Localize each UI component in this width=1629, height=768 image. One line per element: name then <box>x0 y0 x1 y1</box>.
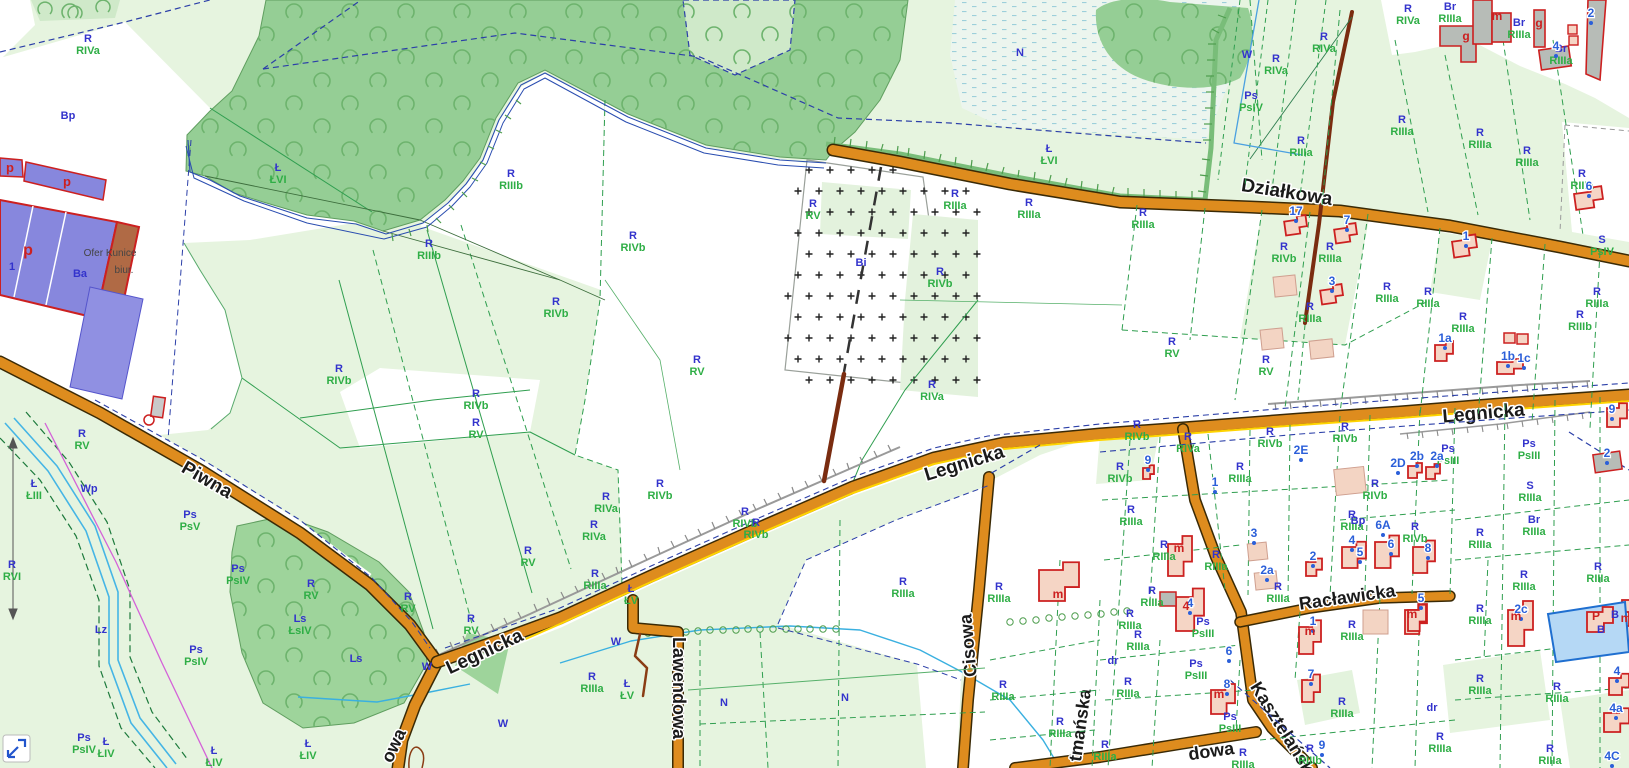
svg-text:RIIIa: RIIIa <box>1266 593 1290 605</box>
svg-text:m: m <box>1511 609 1522 623</box>
svg-text:B: B <box>1611 609 1619 621</box>
svg-text:Br: Br <box>1444 1 1457 13</box>
svg-text:ŁV: ŁV <box>624 595 639 607</box>
svg-text:R: R <box>1266 426 1274 438</box>
svg-text:2: 2 <box>1588 6 1595 20</box>
svg-text:PsIV: PsIV <box>1239 102 1264 114</box>
svg-text:R: R <box>1383 281 1391 293</box>
svg-text:RIVb: RIVb <box>647 490 672 502</box>
svg-text:R: R <box>472 417 480 429</box>
svg-text:RIIIa: RIIIa <box>1390 126 1414 138</box>
svg-text:R: R <box>1371 478 1379 490</box>
svg-text:R: R <box>307 578 315 590</box>
svg-text:Ł: Ł <box>305 738 312 750</box>
svg-text:RIIIb: RIIIb <box>417 250 441 262</box>
svg-text:R: R <box>741 506 749 518</box>
svg-text:R: R <box>809 198 817 210</box>
svg-text:m: m <box>1174 541 1185 555</box>
svg-text:R: R <box>1025 197 1033 209</box>
svg-text:RIIIa: RIIIa <box>1375 293 1399 305</box>
svg-text:1: 1 <box>1212 475 1219 489</box>
svg-text:9: 9 <box>1145 453 1152 467</box>
svg-text:R: R <box>1320 31 1328 43</box>
svg-text:R: R <box>1476 673 1484 685</box>
svg-text:ŁVI: ŁVI <box>1040 155 1057 167</box>
svg-text:R: R <box>1459 311 1467 323</box>
svg-text:RIVa: RIVa <box>1396 15 1421 27</box>
svg-text:RIIIa: RIIIa <box>1512 581 1536 593</box>
svg-text:S: S <box>1598 234 1605 246</box>
svg-text:4a: 4a <box>1609 701 1623 715</box>
svg-text:R: R <box>1546 743 1554 755</box>
svg-text:R: R <box>951 188 959 200</box>
svg-text:RIIIa: RIIIa <box>1318 253 1342 265</box>
svg-text:1a: 1a <box>1438 331 1452 345</box>
svg-text:RIIIa: RIIIa <box>1428 743 1452 755</box>
svg-text:RIIIa: RIIIa <box>1585 298 1609 310</box>
svg-text:RV: RV <box>74 440 90 452</box>
svg-text:RIVb: RIVb <box>1257 438 1282 450</box>
svg-text:ŁIII: ŁIII <box>26 490 42 502</box>
svg-text:RIVb: RIVb <box>1107 473 1132 485</box>
svg-text:N: N <box>720 697 728 709</box>
svg-text:ŁsIV: ŁsIV <box>288 625 312 637</box>
svg-text:RV: RV <box>1164 348 1180 360</box>
svg-text:RIIIa: RIIIa <box>1545 693 1569 705</box>
svg-text:Bp: Bp <box>1351 515 1366 527</box>
svg-text:RIIIa: RIIIa <box>1468 615 1492 627</box>
svg-text:Ps: Ps <box>1196 616 1209 628</box>
svg-text:R: R <box>1436 731 1444 743</box>
svg-text:W: W <box>1242 49 1253 61</box>
svg-text:R: R <box>1184 431 1192 443</box>
svg-text:8: 8 <box>1224 677 1231 691</box>
svg-text:Ls: Ls <box>294 613 307 625</box>
svg-text:PsIV: PsIV <box>184 656 209 668</box>
svg-text:RIIIa: RIIIa <box>1515 157 1539 169</box>
svg-text:R: R <box>928 379 936 391</box>
svg-text:2D: 2D <box>1390 456 1406 470</box>
svg-text:RIVb: RIVb <box>543 308 568 320</box>
svg-text:RIIIa: RIIIa <box>1507 29 1531 41</box>
svg-text:RIIIa: RIIIa <box>1298 313 1322 325</box>
svg-text:R: R <box>1476 127 1484 139</box>
svg-text:R: R <box>1338 696 1346 708</box>
svg-text:R: R <box>425 238 433 250</box>
svg-text:RIIIa: RIIIa <box>1438 13 1462 25</box>
svg-text:PsV: PsV <box>180 521 201 533</box>
svg-text:2a: 2a <box>1430 449 1444 463</box>
svg-text:ŁIV: ŁIV <box>299 750 317 762</box>
svg-text:R: R <box>1476 527 1484 539</box>
svg-text:N: N <box>1016 47 1024 59</box>
svg-text:R: R <box>1160 539 1168 551</box>
svg-text:7: 7 <box>1308 667 1315 681</box>
svg-text:RIVb: RIVb <box>927 278 952 290</box>
svg-text:RVI: RVI <box>3 571 21 583</box>
svg-text:5: 5 <box>1357 545 1364 559</box>
svg-text:RIIIa: RIIIa <box>1231 759 1255 768</box>
svg-text:RIIIa: RIIIa <box>1048 728 1072 740</box>
svg-text:m: m <box>1621 611 1629 625</box>
svg-text:ŁVI: ŁVI <box>269 174 286 186</box>
svg-text:Ł: Ł <box>628 583 635 595</box>
svg-text:RIVb: RIVb <box>743 529 768 541</box>
svg-text:3: 3 <box>1251 526 1258 540</box>
svg-text:PsIV: PsIV <box>72 744 97 756</box>
svg-text:RIIIa: RIIIa <box>1140 597 1164 609</box>
svg-text:R: R <box>1126 608 1134 620</box>
svg-text:R: R <box>1262 354 1270 366</box>
svg-text:RIVb: RIVb <box>1332 433 1357 445</box>
svg-text:2b: 2b <box>1410 449 1424 463</box>
svg-text:2E: 2E <box>1294 443 1309 457</box>
svg-text:RIVb: RIVb <box>620 242 645 254</box>
svg-text:RIVb: RIVb <box>1362 490 1387 502</box>
svg-text:R: R <box>602 491 610 503</box>
svg-text:9: 9 <box>1319 738 1326 752</box>
svg-text:R: R <box>1236 461 1244 473</box>
svg-text:8: 8 <box>1425 541 1432 555</box>
svg-text:RIVa: RIVa <box>920 391 945 403</box>
svg-text:Ba: Ba <box>73 268 88 280</box>
svg-text:RV: RV <box>463 625 479 637</box>
svg-text:PsIV: PsIV <box>226 575 251 587</box>
svg-text:R: R <box>936 266 944 278</box>
svg-text:R: R <box>1576 309 1584 321</box>
svg-text:R: R <box>656 478 664 490</box>
svg-text:RIIIa: RIIIa <box>1330 708 1354 720</box>
svg-text:R: R <box>1404 3 1412 15</box>
svg-text:Ps: Ps <box>77 732 90 744</box>
svg-text:RIIIa: RIIIa <box>583 580 607 592</box>
svg-text:R: R <box>1124 676 1132 688</box>
svg-text:R: R <box>1326 241 1334 253</box>
svg-text:17: 17 <box>1289 204 1303 218</box>
svg-text:R: R <box>1116 461 1124 473</box>
svg-text:2: 2 <box>1310 549 1317 563</box>
svg-text:R: R <box>507 168 515 180</box>
svg-text:RV: RV <box>805 210 821 222</box>
svg-text:biur.: biur. <box>115 265 134 276</box>
svg-text:RIIIa: RIIIa <box>1017 209 1041 221</box>
svg-text:R: R <box>693 354 701 366</box>
svg-text:Bp: Bp <box>61 110 76 122</box>
svg-text:ŁIV: ŁIV <box>205 757 223 768</box>
svg-text:g: g <box>1462 29 1469 43</box>
svg-text:R: R <box>1476 603 1484 615</box>
svg-text:R: R <box>472 388 480 400</box>
svg-text:R: R <box>995 581 1003 593</box>
svg-text:R: R <box>999 679 1007 691</box>
svg-text:PsIII: PsIII <box>1185 670 1208 682</box>
svg-text:RIVa: RIVa <box>1312 43 1337 55</box>
svg-text:dr: dr <box>1427 702 1439 714</box>
svg-text:dr: dr <box>1108 655 1120 667</box>
svg-text:Ps: Ps <box>1223 711 1236 723</box>
svg-text:6: 6 <box>1388 537 1395 551</box>
svg-text:ŁIV: ŁIV <box>97 748 115 760</box>
svg-text:R: R <box>1411 521 1419 533</box>
svg-text:RIIIa: RIIIa <box>1451 323 1475 335</box>
svg-text:7: 7 <box>1344 213 1351 227</box>
svg-text:RIVb: RIVb <box>463 400 488 412</box>
svg-text:R: R <box>84 33 92 45</box>
svg-text:R: R <box>1348 619 1356 631</box>
svg-text:1: 1 <box>1463 229 1470 243</box>
svg-text:RIVa: RIVa <box>582 531 607 543</box>
svg-text:Ps: Ps <box>183 509 196 521</box>
svg-text:RIIIa: RIIIa <box>1538 755 1562 767</box>
svg-text:Ofer Kunice: Ofer Kunice <box>84 248 137 259</box>
svg-text:RV: RV <box>400 603 416 615</box>
svg-text:2a: 2a <box>1260 563 1274 577</box>
svg-text:4C: 4C <box>1604 749 1620 763</box>
svg-text:RIIIa: RIIIa <box>1468 685 1492 697</box>
svg-text:RIIIa: RIIIa <box>1289 147 1313 159</box>
svg-text:R: R <box>1424 286 1432 298</box>
svg-text:6: 6 <box>1586 179 1593 193</box>
svg-text:p: p <box>23 242 33 259</box>
svg-text:R: R <box>1239 747 1247 759</box>
svg-text:W: W <box>422 661 433 673</box>
svg-text:RIIIb: RIIIb <box>1298 755 1322 767</box>
svg-text:R: R <box>335 363 343 375</box>
svg-text:RIIIb: RIIIb <box>1568 321 1592 333</box>
svg-text:R: R <box>629 230 637 242</box>
svg-text:RV: RV <box>689 366 705 378</box>
svg-text:RIIIa: RIIIa <box>1586 573 1610 585</box>
svg-text:R: R <box>1056 716 1064 728</box>
svg-text:RIIIa: RIIIa <box>1126 641 1150 653</box>
svg-text:RIIIa: RIIIa <box>1522 526 1546 538</box>
svg-text:RIIIa: RIIIa <box>1119 516 1143 528</box>
svg-text:R: R <box>467 613 475 625</box>
svg-text:PsIII: PsIII <box>1219 723 1242 735</box>
svg-text:W: W <box>611 636 622 648</box>
svg-text:RIIIa: RIIIa <box>1416 298 1440 310</box>
svg-text:p: p <box>6 160 14 175</box>
svg-text:Br: Br <box>1513 17 1526 29</box>
svg-text:Br: Br <box>1528 514 1541 526</box>
svg-text:N: N <box>841 692 849 704</box>
svg-text:RIIIa: RIIIa <box>1204 561 1228 573</box>
svg-text:R: R <box>590 519 598 531</box>
svg-text:R: R <box>8 559 16 571</box>
svg-text:Ps: Ps <box>1244 90 1257 102</box>
svg-text:R: R <box>1280 241 1288 253</box>
svg-text:4: 4 <box>1614 664 1621 678</box>
svg-text:6: 6 <box>1226 644 1233 658</box>
svg-text:RIIIa: RIIIa <box>1518 492 1542 504</box>
svg-text:m: m <box>1407 607 1418 621</box>
svg-text:R: R <box>1341 421 1349 433</box>
svg-text:R: R <box>1594 561 1602 573</box>
svg-text:R: R <box>1127 504 1135 516</box>
svg-text:1: 1 <box>9 261 15 273</box>
svg-text:R: R <box>1139 207 1147 219</box>
svg-text:R: R <box>1272 53 1280 65</box>
svg-text:RIVa: RIVa <box>1264 65 1289 77</box>
svg-text:R: R <box>1398 114 1406 126</box>
svg-text:RIVb: RIVb <box>1271 253 1296 265</box>
svg-text:RIIIa: RIIIa <box>891 588 915 600</box>
svg-text:R: R <box>1523 145 1531 157</box>
svg-text:RIIIa: RIIIa <box>987 593 1011 605</box>
svg-text:R: R <box>588 671 596 683</box>
svg-text:Ps: Ps <box>1522 438 1535 450</box>
svg-text:R: R <box>1133 419 1141 431</box>
svg-text:R: R <box>1101 739 1109 751</box>
svg-text:PsIII: PsIII <box>1518 450 1541 462</box>
svg-text:PsIII: PsIII <box>1192 628 1215 640</box>
svg-text:Ps: Ps <box>231 563 244 575</box>
svg-text:Ł: Ł <box>103 736 110 748</box>
svg-text:Ł: Ł <box>624 678 631 690</box>
svg-text:R: R <box>1297 135 1305 147</box>
svg-text:B: B <box>1597 624 1605 636</box>
svg-text:Ł: Ł <box>1046 143 1053 155</box>
svg-text:RIIIa: RIIIa <box>1468 539 1492 551</box>
svg-text:1b: 1b <box>1501 349 1515 363</box>
svg-text:Lawendowa: Lawendowa <box>669 637 689 740</box>
svg-text:2: 2 <box>1604 446 1611 460</box>
svg-text:Ls: Ls <box>350 653 363 665</box>
svg-text:6A: 6A <box>1375 518 1391 532</box>
svg-text:P: P <box>1592 609 1600 623</box>
svg-text:W: W <box>498 718 509 730</box>
svg-text:RIIIa: RIIIa <box>1468 139 1492 151</box>
svg-text:R: R <box>1306 301 1314 313</box>
svg-text:R: R <box>78 428 86 440</box>
svg-text:S: S <box>1526 480 1533 492</box>
svg-text:Bi: Bi <box>856 257 867 269</box>
svg-text:Ps: Ps <box>1189 658 1202 670</box>
svg-text:R: R <box>404 591 412 603</box>
svg-text:RIIIa: RIIIa <box>943 200 967 212</box>
svg-text:RIIIa: RIIIa <box>1340 631 1364 643</box>
svg-text:RIIIa: RIIIa <box>1549 55 1573 67</box>
svg-text:RIVa: RIVa <box>76 45 101 57</box>
svg-text:R: R <box>1274 581 1282 593</box>
svg-text:m: m <box>1214 687 1225 701</box>
svg-text:RIVb: RIVb <box>326 375 351 387</box>
svg-text:R: R <box>1148 585 1156 597</box>
svg-text:RV: RV <box>520 557 536 569</box>
svg-text:PsIV: PsIV <box>1590 246 1615 258</box>
svg-text:RIIIa: RIIIa <box>580 683 604 695</box>
svg-text:R: R <box>524 545 532 557</box>
svg-text:g: g <box>1535 16 1542 30</box>
svg-text:Wp: Wp <box>80 483 97 495</box>
svg-text:R: R <box>1553 681 1561 693</box>
svg-text:4: 4 <box>1349 533 1356 547</box>
svg-text:R: R <box>1134 629 1142 641</box>
svg-text:R: R <box>1520 569 1528 581</box>
svg-text:m: m <box>1492 9 1503 23</box>
svg-text:ŁV: ŁV <box>620 690 635 702</box>
svg-text:RV: RV <box>303 590 319 602</box>
svg-text:3: 3 <box>1329 274 1336 288</box>
svg-text:RIVa: RIVa <box>594 503 619 515</box>
svg-text:RIIIa: RIIIa <box>1116 688 1140 700</box>
svg-text:1c: 1c <box>1517 351 1531 365</box>
svg-text:RIVb: RIVb <box>1124 431 1149 443</box>
svg-text:R: R <box>591 568 599 580</box>
svg-text:RIIIa: RIIIa <box>1093 751 1117 763</box>
svg-text:R: R <box>1168 336 1176 348</box>
svg-text:R: R <box>1593 286 1601 298</box>
svg-text:Lz: Lz <box>95 624 108 636</box>
svg-text:R: R <box>1306 743 1314 755</box>
svg-text:R: R <box>752 517 760 529</box>
svg-text:5: 5 <box>1418 591 1425 605</box>
svg-text:RIIIa: RIIIa <box>991 691 1015 703</box>
svg-text:RIVa: RIVa <box>1176 443 1201 455</box>
svg-text:Ł: Ł <box>211 745 218 757</box>
svg-text:RIIIa: RIIIa <box>1131 219 1155 231</box>
svg-text:p: p <box>63 174 71 189</box>
svg-text:4: 4 <box>1183 599 1190 613</box>
svg-text:Ł: Ł <box>275 162 282 174</box>
svg-text:RV: RV <box>468 429 484 441</box>
svg-text:RIIIa: RIIIa <box>1228 473 1252 485</box>
svg-text:RIIIb: RIIIb <box>499 180 523 192</box>
svg-text:Ps: Ps <box>189 644 202 656</box>
svg-text:RV: RV <box>1258 366 1274 378</box>
svg-text:R: R <box>1212 549 1220 561</box>
svg-text:R: R <box>552 296 560 308</box>
svg-text:R: R <box>899 576 907 588</box>
svg-text:9: 9 <box>1609 402 1616 416</box>
svg-text:m: m <box>1053 587 1064 601</box>
svg-text:Ł: Ł <box>31 478 38 490</box>
svg-text:4: 4 <box>1553 39 1560 53</box>
svg-text:m: m <box>1305 624 1316 638</box>
